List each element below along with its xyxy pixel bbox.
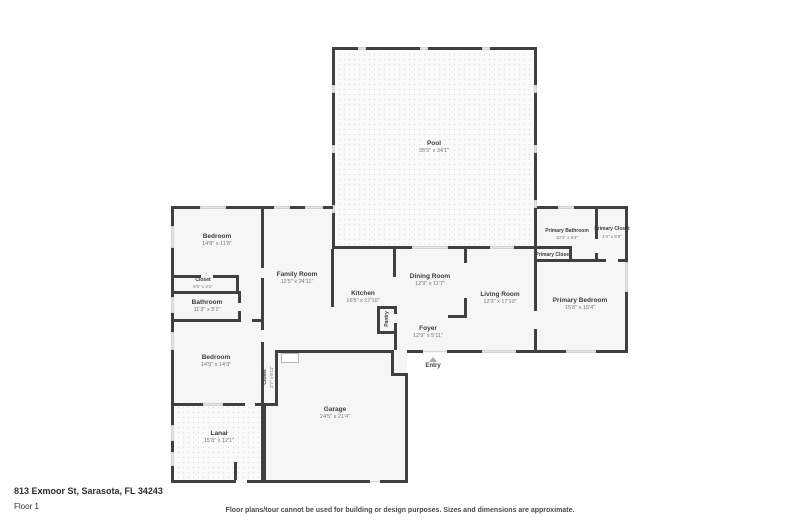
room-name: Pantry xyxy=(384,311,390,327)
disclaimer-text: Floor plans/tour cannot be used for buil… xyxy=(0,507,800,514)
room-name: Primary Bedroom xyxy=(553,297,608,304)
room-name: Kitchen xyxy=(346,290,379,297)
wall-family-left xyxy=(261,278,264,330)
wall-kitchen-left xyxy=(331,249,334,307)
wall-family-left xyxy=(261,206,264,268)
window xyxy=(200,206,226,209)
wall-lanai-bottom xyxy=(171,480,236,483)
window xyxy=(171,332,174,350)
wall-lanai-right xyxy=(261,405,264,483)
window xyxy=(171,226,174,248)
window xyxy=(490,246,514,249)
garage-door-threshold xyxy=(370,481,380,482)
wall-garage-bottom xyxy=(263,480,370,483)
wall-garage-right xyxy=(405,375,408,483)
room-label-lanai: Lanai 15'8" x 12'1" xyxy=(204,430,234,444)
window xyxy=(171,297,174,313)
wall-living-foyer xyxy=(448,315,467,318)
wall-pantry-right xyxy=(394,306,397,314)
room-label-primary-bathroom: Primary Bathroom 10'4" x 6'4" xyxy=(545,228,589,240)
window xyxy=(171,452,174,466)
wall-dining-living xyxy=(464,249,467,263)
room-label-primary-closet-small: Primary Closet xyxy=(535,252,570,258)
wall-lanai-inner xyxy=(234,462,237,480)
wall-closet1-bottom xyxy=(171,291,239,294)
pool-enclosure-gap xyxy=(420,47,428,50)
room-name: Dining Room xyxy=(410,273,450,280)
room-label-closet2: Closet 2'7" x 8'11" xyxy=(262,366,274,388)
pool-enclosure-gap xyxy=(358,47,366,50)
room-dims: 9'6" x 2'1" xyxy=(193,284,213,289)
room-label-family-room: Family Room 12'5" x 24'11" xyxy=(277,271,318,285)
window xyxy=(558,206,574,209)
room-name: Foyer xyxy=(413,325,443,332)
room-label-closet1: Closet 9'6" x 2'1" xyxy=(193,277,213,289)
wall-bottom-main xyxy=(407,350,423,353)
room-label-living-room: Living Room 12'3" x 17'10" xyxy=(480,291,519,305)
room-label-foyer: Foyer 12'9" x 5'11" xyxy=(413,325,443,339)
room-label-primary-bedroom: Primary Bedroom 15'8" x 15'4" xyxy=(553,297,608,311)
room-label-bedroom1: Bedroom 14'8" x 11'8" xyxy=(202,233,232,247)
room-dims: 24'5" x 21'4" xyxy=(320,414,350,420)
wall-lanai-bottom xyxy=(247,480,264,483)
room-dims: 12'3" x 17'10" xyxy=(480,299,519,305)
room-name: Closet xyxy=(262,366,268,388)
room-name: Closet xyxy=(193,277,213,283)
room-label-kitchen: Kitchen 16'5" x 17'10" xyxy=(346,290,379,304)
wall-primary-bathroom-bottom xyxy=(618,259,628,262)
entry-label: Entry xyxy=(425,363,440,369)
room-name: Bathroom xyxy=(192,299,223,306)
wall-closet2-right xyxy=(275,350,278,405)
window xyxy=(625,262,628,292)
room-dims: 12'9" x 5'11" xyxy=(413,333,443,339)
wall-bathroom-bottom xyxy=(252,319,263,322)
room-dims: 35'5" x 34'1" xyxy=(419,148,449,154)
pool-enclosure-gap xyxy=(332,145,335,153)
room-label-primary-closet-side: Primary Closet 4'4" x 8'9" xyxy=(591,227,633,239)
entry-threshold xyxy=(423,351,447,352)
room-name: Primary Closet xyxy=(591,227,633,233)
property-address: 813 Exmoor St, Sarasota, FL 34243 xyxy=(14,486,163,496)
room-label-dining-room: Dining Room 12'9" x 11'7" xyxy=(410,273,450,287)
room-dims: 2'7" x 8'11" xyxy=(269,366,274,388)
wall-bathroom-right xyxy=(238,291,241,303)
wall-pantry-left xyxy=(377,306,380,334)
window xyxy=(203,403,223,406)
room-dims: 14'8" x 11'8" xyxy=(202,241,232,247)
room-name: Family Room xyxy=(277,271,318,278)
room-area-lanai xyxy=(171,405,263,483)
wall-garage-bottom xyxy=(380,480,408,483)
room-dims: 4'4" x 8'9" xyxy=(591,234,633,239)
wall-bathroom-bottom xyxy=(171,319,241,322)
room-name: Lanai xyxy=(204,430,234,437)
room-dims: 12'9" x 11'7" xyxy=(410,281,450,287)
sliding-door xyxy=(412,246,448,249)
room-label-garage: Garage 24'5" x 21'4" xyxy=(320,406,350,420)
pool-enclosure-gap xyxy=(534,85,537,93)
wall-entry-notch xyxy=(391,350,394,375)
wall-kitchen-dining xyxy=(393,249,396,277)
room-dims: 16'5" x 17'10" xyxy=(346,298,379,304)
pool-enclosure-gap xyxy=(332,85,335,93)
wall-top-primary-suite xyxy=(537,206,628,209)
pool-enclosure-gap xyxy=(534,145,537,153)
wall-bottom-main xyxy=(447,350,628,353)
room-dims: 14'9" x 14'3" xyxy=(201,362,231,368)
room-dims: 10'4" x 6'4" xyxy=(545,235,589,240)
wall-primary-left xyxy=(534,329,537,353)
room-dims: 12'5" x 24'11" xyxy=(277,279,318,285)
room-label-bathroom: Bathroom 11'3" x 5'1" xyxy=(192,299,223,313)
wall-pantry-right xyxy=(394,323,397,350)
pool-enclosure-gap xyxy=(482,47,490,50)
room-label-pantry: Pantry xyxy=(384,311,390,327)
window xyxy=(305,206,323,209)
room-name: Garage xyxy=(320,406,350,413)
wall-primary-closet-divider xyxy=(595,253,598,262)
room-name: Bedroom xyxy=(202,233,232,240)
room-label-bedroom2: Bedroom 14'9" x 14'3" xyxy=(201,354,231,368)
room-dims: 11'3" x 5'1" xyxy=(192,307,223,313)
room-dims: 15'8" x 12'1" xyxy=(204,438,234,444)
garage-service-door xyxy=(281,353,299,363)
window xyxy=(482,350,516,353)
room-name: Bedroom xyxy=(201,354,231,361)
room-name: Primary Closet xyxy=(535,252,570,258)
wall-primary-closet-small-top xyxy=(537,246,572,249)
room-dims: 15'8" x 15'4" xyxy=(553,305,608,311)
floor-plan-canvas: Pool 35'5" x 34'1" Bedroom 14'8" x 11'8"… xyxy=(0,0,800,530)
room-name: Living Room xyxy=(480,291,519,298)
entry-arrow-icon xyxy=(429,357,437,362)
room-name: Pool xyxy=(419,140,449,147)
window xyxy=(566,350,596,353)
window xyxy=(171,425,174,441)
window xyxy=(274,206,290,209)
room-label-pool: Pool 35'5" x 34'1" xyxy=(419,140,449,154)
room-name: Primary Bathroom xyxy=(545,228,589,234)
